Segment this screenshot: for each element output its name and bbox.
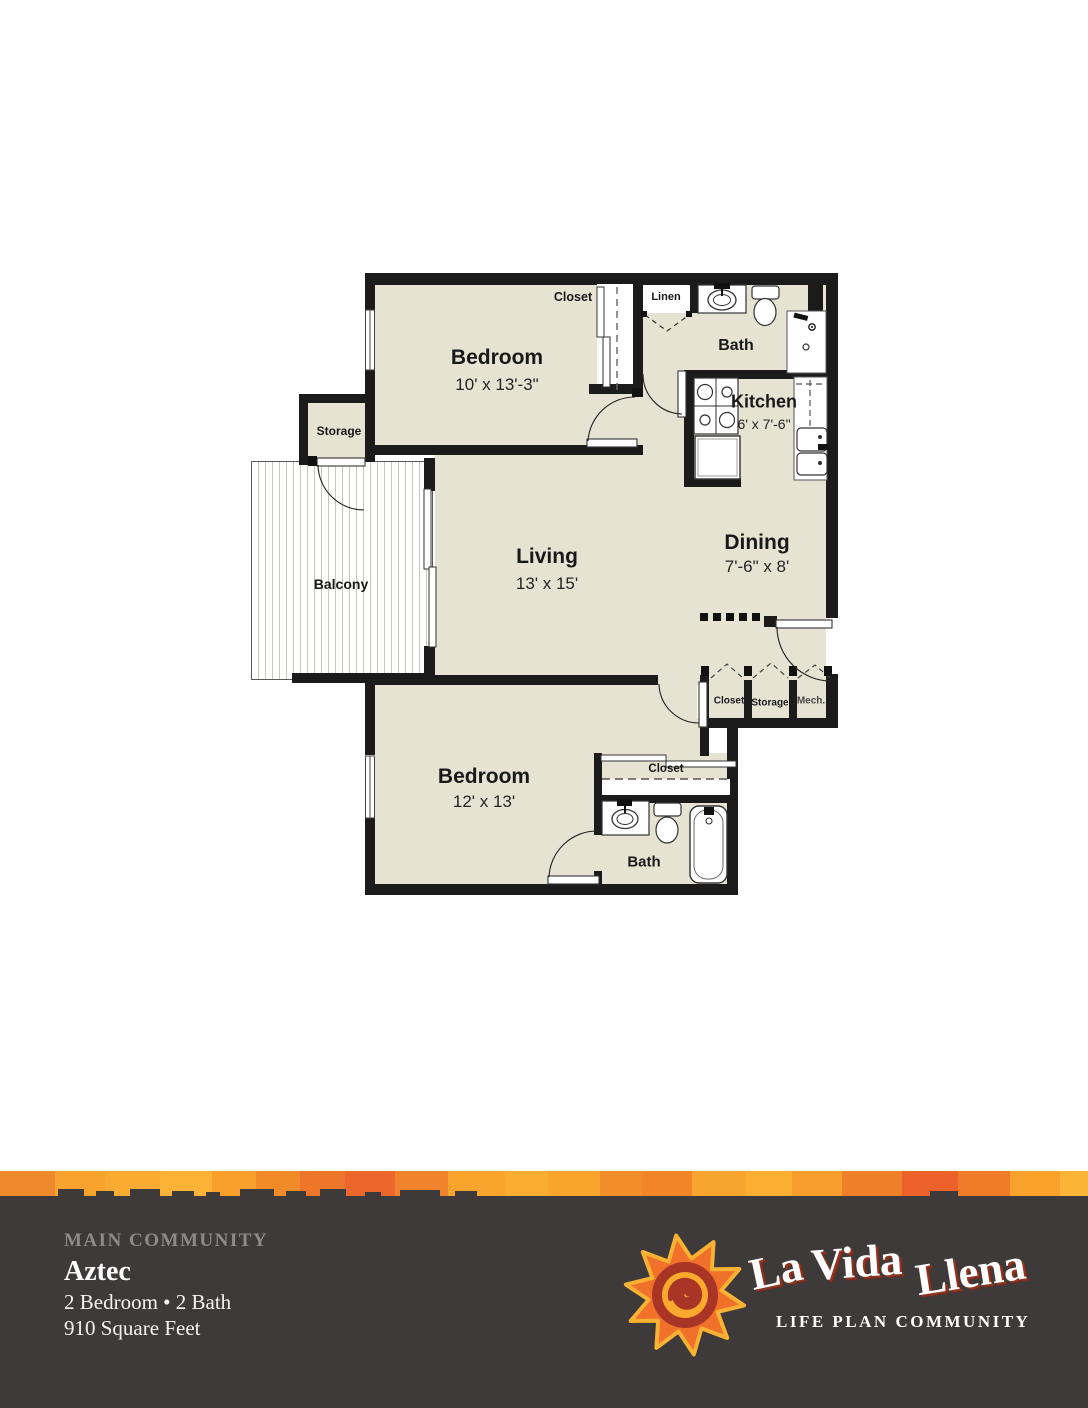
room-label-closet-hall: Closet — [714, 696, 745, 707]
room-label-kitchen: Kitchen — [731, 392, 797, 413]
room-dims-dining: 7'-6" x 8' — [725, 557, 790, 577]
unit-area: 910 Square Feet — [64, 1316, 200, 1341]
toilet2-icon — [654, 803, 681, 843]
shower-icon — [787, 311, 826, 373]
room-label-bath2: Bath — [627, 854, 660, 871]
doors — [308, 371, 832, 884]
sink-icon — [698, 283, 746, 313]
room-label-bath1: Bath — [718, 337, 754, 355]
room-dims-living: 13' x 15' — [516, 574, 578, 594]
room-label-storage-upper: Storage — [317, 424, 362, 438]
balcony-slider — [424, 489, 436, 647]
room-label-closet2: Closet — [648, 763, 683, 775]
stripe-tooth — [130, 1189, 160, 1196]
compartment-bifolds — [711, 663, 830, 678]
closet2-fixture — [601, 755, 736, 795]
closet1-fixture — [597, 284, 633, 391]
window-bedroom1 — [366, 310, 375, 370]
room-label-living: Living — [516, 545, 578, 569]
dining-dotted-screen — [700, 613, 760, 621]
toilet-icon — [752, 286, 779, 326]
room-label-storage-hall: Storage — [751, 698, 788, 709]
stripe-tooth — [240, 1189, 274, 1196]
unit-configuration: 2 Bedroom • 2 Bath — [64, 1290, 231, 1315]
stripe-tooth — [58, 1189, 84, 1196]
window-bedroom2 — [366, 756, 375, 818]
room-label-linen: Linen — [651, 291, 680, 303]
brochure-page: Bedroom 10' x 13'-3" Living 13' x 15' Di… — [0, 0, 1088, 1408]
room-dims-bedroom1: 10' x 13'-3" — [455, 375, 538, 395]
logo-wordmark: La Vida Llena — [748, 1240, 1048, 1285]
unit-name: Aztec — [64, 1256, 131, 1288]
room-label-balcony: Balcony — [314, 576, 368, 592]
room-label-bedroom2: Bedroom — [438, 765, 530, 789]
kitchen-counter — [695, 436, 740, 479]
room-label-bedroom1: Bedroom — [451, 346, 543, 370]
logo-tagline: LIFE PLAN COMMUNITY — [776, 1312, 1030, 1332]
orange-stripe — [0, 1171, 1088, 1196]
bathtub-icon — [690, 806, 727, 883]
sink2-icon — [602, 799, 649, 835]
room-label-mech: Mech. — [797, 696, 825, 707]
compartment-hinges — [701, 666, 832, 676]
logo-word-vida: Vida — [810, 1237, 904, 1288]
stripe-tooth — [320, 1189, 346, 1196]
room-label-closet1: Closet — [554, 290, 592, 304]
sun-icon — [615, 1225, 755, 1365]
room-dims-kitchen: 6' x 7'-6" — [737, 416, 790, 432]
room-label-dining: Dining — [724, 531, 789, 555]
community-label: MAIN COMMUNITY — [64, 1230, 268, 1252]
logo-word-la: La — [746, 1243, 807, 1298]
room-dims-bedroom2: 12' x 13' — [453, 792, 515, 812]
kitchen-sink-icon — [794, 377, 828, 480]
